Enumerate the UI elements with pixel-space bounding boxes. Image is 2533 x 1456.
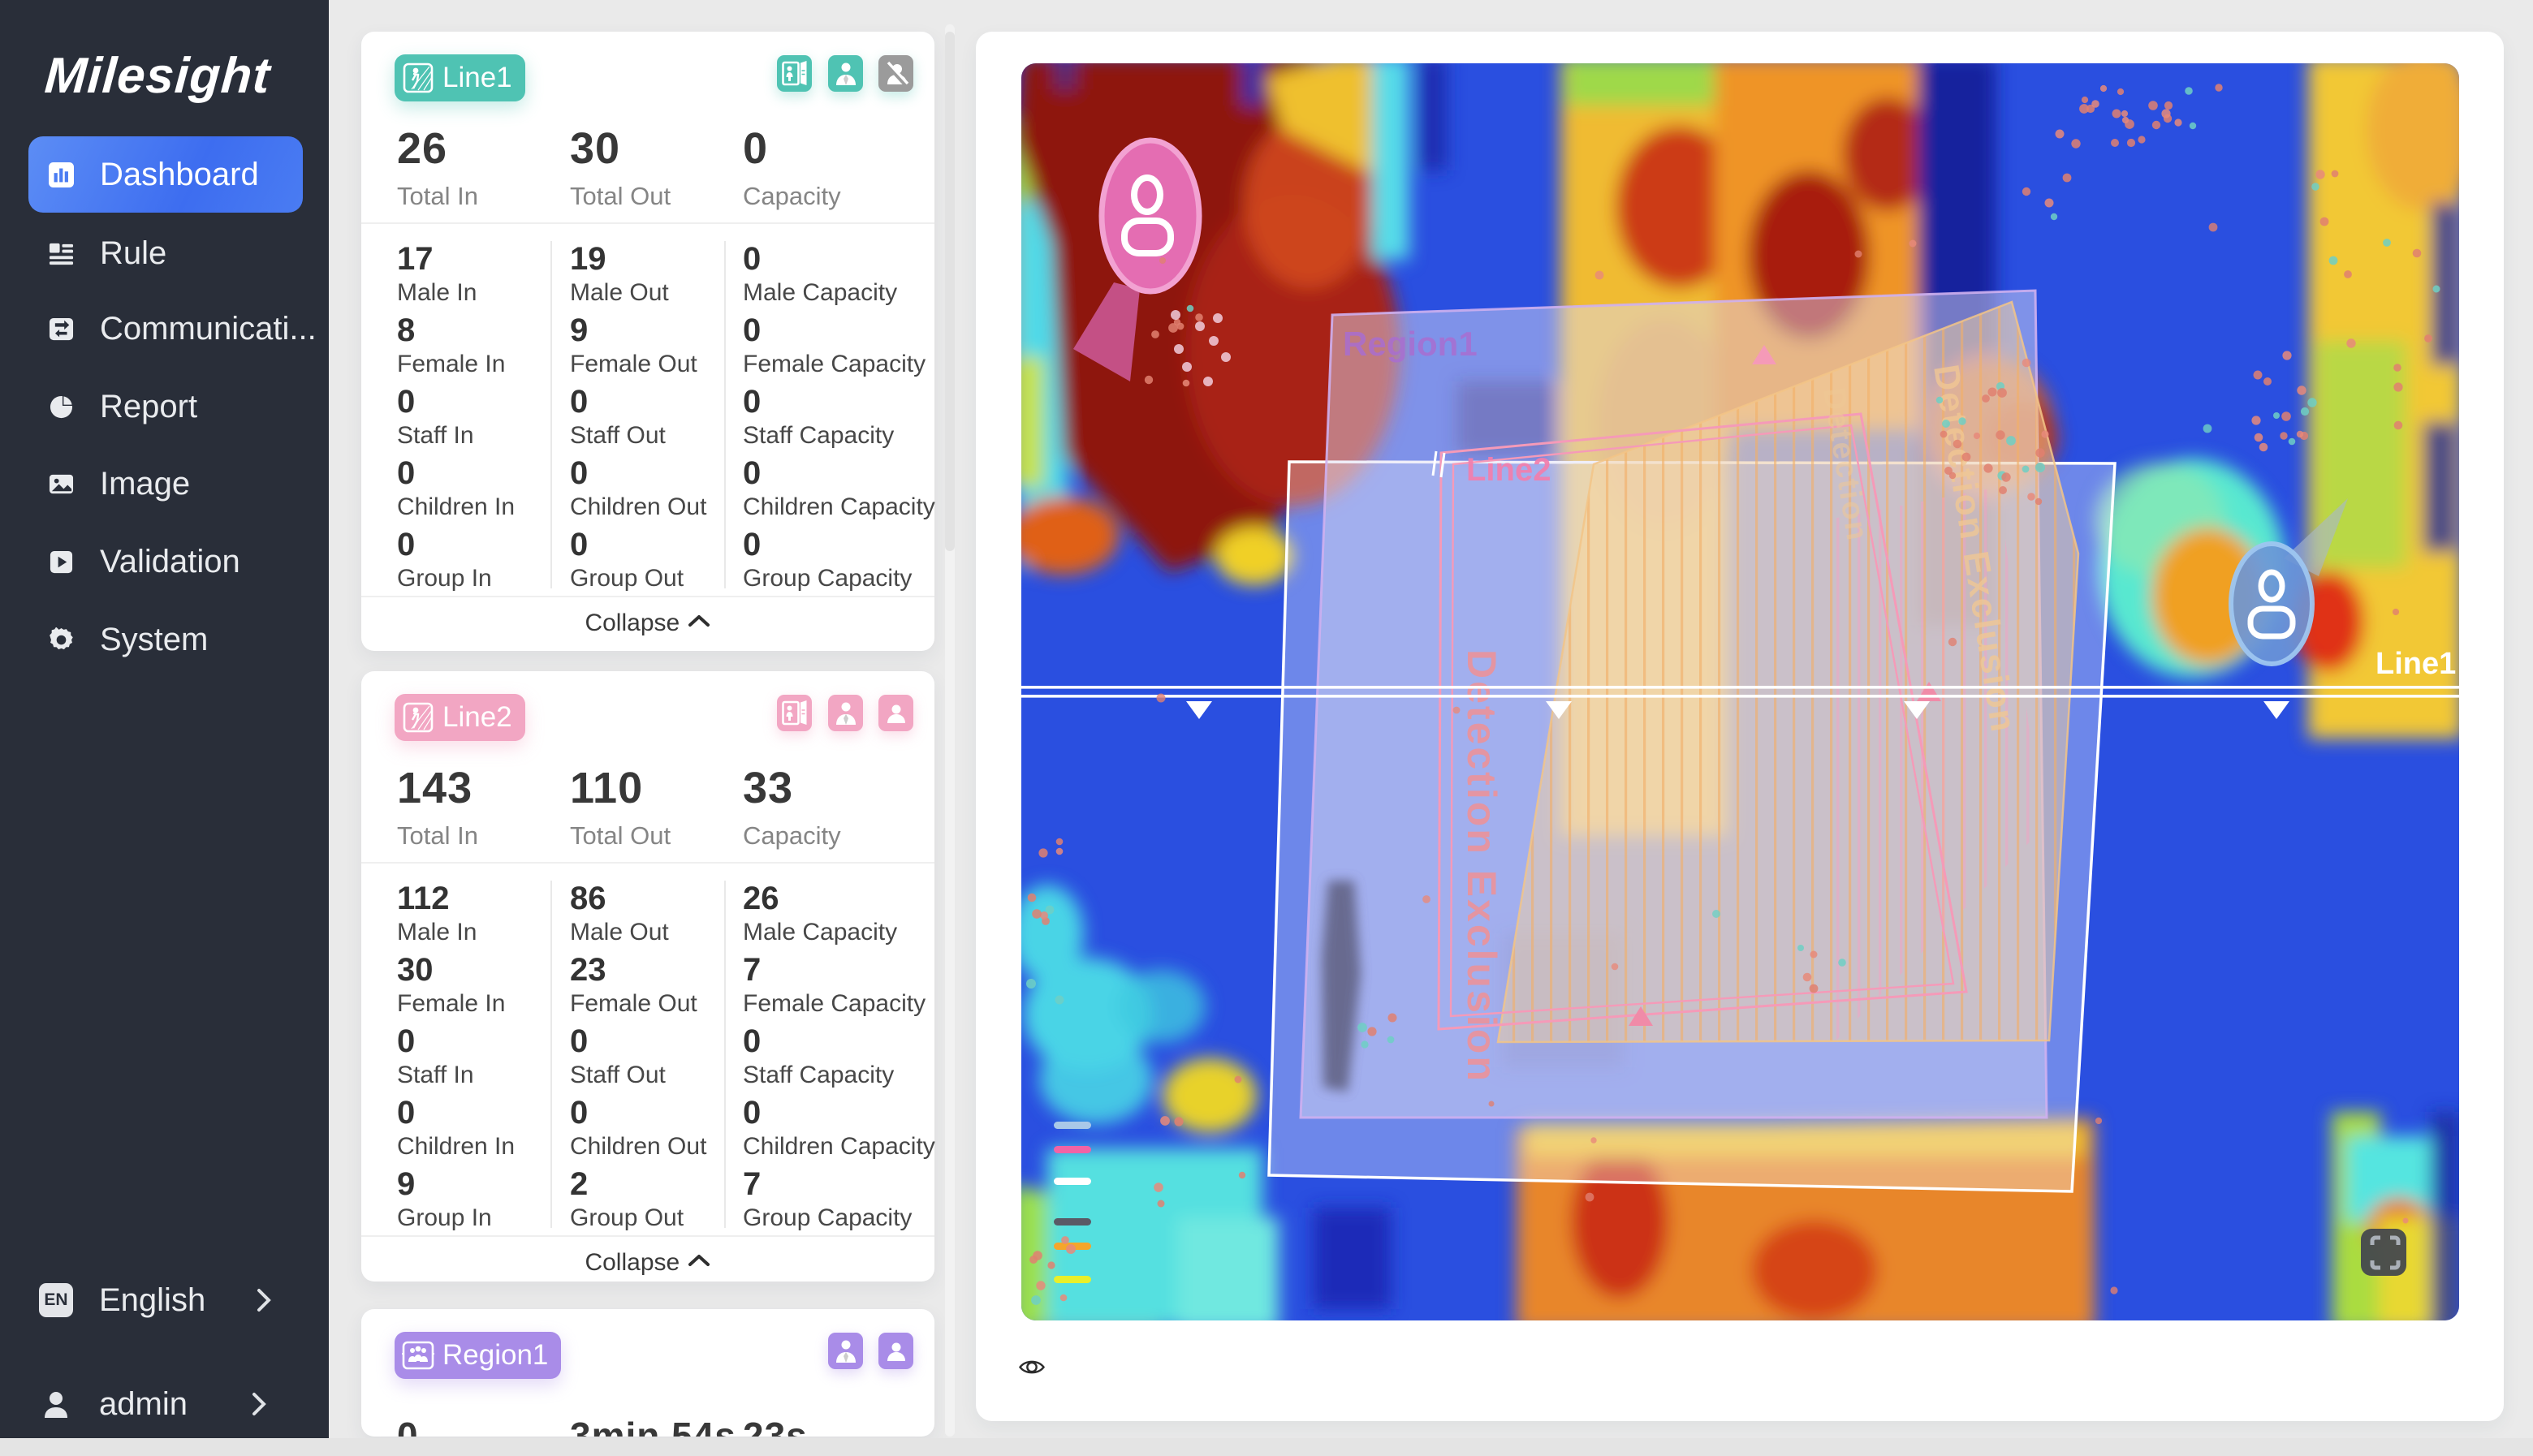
svg-text:Detection Exclusion: Detection Exclusion [1459,649,1504,1083]
svg-text:Line1: Line1 [2375,647,2456,681]
svg-text:Line2: Line2 [1466,452,1551,488]
svg-text:Region1: Region1 [1343,325,1478,363]
